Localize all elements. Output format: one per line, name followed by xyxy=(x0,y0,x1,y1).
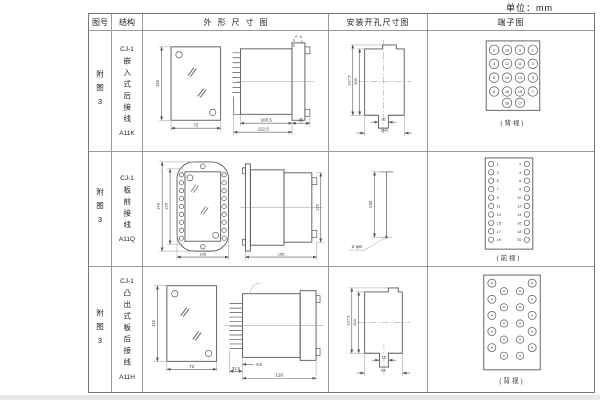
svg-text:3: 3 xyxy=(497,171,499,175)
fig-no-text: 附图3 xyxy=(95,309,106,351)
svg-text:14: 14 xyxy=(517,213,521,217)
structure-desc: 板前接线 xyxy=(123,186,131,232)
row3-fig-no: 附图3 xyxy=(89,267,112,392)
svg-text:1: 1 xyxy=(532,47,534,52)
type-code: A11K xyxy=(119,130,134,137)
terminal-number-marks xyxy=(491,282,533,356)
structure-desc: 嵌入式后接线 xyxy=(123,57,131,126)
svg-text:12: 12 xyxy=(517,205,521,209)
model-label: CJ-1 xyxy=(120,46,134,53)
header-fig-no: 图号 xyxy=(89,14,112,31)
dim-bottom-width: 64 xyxy=(381,368,386,373)
dim-total-length: 126 xyxy=(276,373,284,378)
seal-mark-icon xyxy=(181,308,189,317)
dim-pins-length: 31.5 xyxy=(232,366,241,371)
svg-text:12: 12 xyxy=(505,61,509,66)
dim-front-width: 72 xyxy=(189,364,194,369)
dim-hole-height-outer: 107.5 xyxy=(345,315,350,326)
dim-slot-width: 16 xyxy=(382,355,387,360)
svg-text:4: 4 xyxy=(493,61,496,66)
svg-text:6: 6 xyxy=(493,75,496,80)
svg-text:2: 2 xyxy=(493,47,495,52)
dim-side-length: 156 xyxy=(278,252,286,257)
svg-text:7: 7 xyxy=(532,89,534,94)
svg-text:5: 5 xyxy=(532,75,535,80)
svg-text:8: 8 xyxy=(519,188,521,192)
svg-text:16: 16 xyxy=(517,221,521,225)
seal-mark-icon xyxy=(201,207,208,215)
svg-text:20: 20 xyxy=(517,238,521,242)
screw-icon xyxy=(213,232,219,238)
dim-hole-height-inner: 104 xyxy=(352,318,357,326)
dim-front-width: 105 xyxy=(199,252,207,257)
terminal-pins-icon xyxy=(230,304,243,349)
fig-no-text: 附图3 xyxy=(95,70,106,112)
row1-structure: CJ-1 嵌入式后接线 A11K xyxy=(112,31,143,152)
row3-structure: CJ-1 凸出式板后接线 A11H xyxy=(112,267,143,392)
dim-front-width: 72 xyxy=(193,123,198,128)
row2-terminal-drawing: 135791113151719 2468101214161820 (前视) xyxy=(428,152,594,267)
model-label: CJ-1 xyxy=(120,175,134,182)
terminal-circles xyxy=(488,279,536,359)
svg-text:4: 4 xyxy=(519,171,521,175)
type-code: A11Q xyxy=(119,236,135,243)
header-outline: 外形尺寸图 xyxy=(143,14,329,31)
dim-gap: 9.5 xyxy=(256,362,262,367)
svg-text:2: 2 xyxy=(519,162,521,166)
svg-text:15: 15 xyxy=(497,221,501,225)
dim-front-height: 115 xyxy=(155,79,160,87)
view-caption: (背视) xyxy=(500,118,525,127)
row3-install-drawing: 107.5 104 16 64 xyxy=(329,267,428,392)
terminal-numbers-left: 135791113151719 xyxy=(497,162,501,242)
model-label: CJ-1 xyxy=(120,278,134,285)
front-terminal-circles xyxy=(179,173,226,241)
dimension-table: 图号 结构 外形尺寸图 安装开孔尺寸图 端子图 附图3 CJ-1 嵌入式后接线 … xyxy=(88,13,595,393)
svg-text:11: 11 xyxy=(497,205,501,209)
svg-text:17: 17 xyxy=(518,100,522,105)
outline-drawing-a11q: 149 125 105 156 115 xyxy=(143,152,328,266)
terminal-circles xyxy=(488,161,529,242)
screw-icon xyxy=(187,175,193,181)
svg-text:3: 3 xyxy=(532,61,535,66)
header-terminal: 端子图 xyxy=(428,14,594,31)
terminal-circles xyxy=(489,45,537,108)
dim-hole-height-outer: 107.5 xyxy=(346,75,351,86)
terminal-diagram-a11k: 21091 412113 614135 816157 1817 (背视) xyxy=(428,31,594,151)
svg-text:17: 17 xyxy=(497,230,501,234)
install-drawing-a11k: 107.5 105 16 (64) xyxy=(329,31,427,151)
svg-text:13: 13 xyxy=(518,75,523,80)
terminal-pins-icon xyxy=(233,53,241,93)
row1-terminal-drawing: 21091 412113 614135 816157 1817 (背视) xyxy=(428,31,594,152)
row2-fig-no: 附图3 xyxy=(89,152,112,267)
svg-text:5: 5 xyxy=(497,179,499,183)
dim-side-height: 115 xyxy=(314,204,319,211)
outline-drawing-a11k: 115 72 100.5 35 122.5 xyxy=(143,31,328,151)
scan-edge xyxy=(0,395,600,400)
row2-install-drawing: 133 2-φ6 xyxy=(329,152,428,267)
terminal-diagram-a11q: 135791113151719 2468101214161820 (前视) xyxy=(428,152,594,266)
header-install: 安装开孔尺寸图 xyxy=(329,14,428,31)
dim-front-height-inner: 125 xyxy=(164,202,169,210)
mount-hole-icon xyxy=(200,244,205,249)
svg-text:18: 18 xyxy=(505,100,510,105)
row2-structure: CJ-1 板前接线 A11Q xyxy=(112,152,143,267)
svg-text:8: 8 xyxy=(493,89,496,94)
svg-text:6: 6 xyxy=(519,179,521,183)
hanging-hook-icon xyxy=(294,36,302,47)
svg-text:13: 13 xyxy=(497,213,501,217)
svg-text:7: 7 xyxy=(497,188,499,192)
svg-text:16: 16 xyxy=(505,89,510,94)
svg-text:10: 10 xyxy=(505,47,510,52)
terminal-diagram-a11h: (背视) xyxy=(428,267,594,392)
row1-fig-no: 附图3 xyxy=(89,31,112,152)
view-caption: (前视) xyxy=(496,253,521,262)
view-caption: (背视) xyxy=(499,376,525,385)
svg-text:19: 19 xyxy=(497,238,501,242)
svg-text:10: 10 xyxy=(517,196,521,200)
dim-body-length: 100.5 xyxy=(261,118,273,123)
screw-icon xyxy=(172,291,178,297)
screw-icon xyxy=(176,52,182,58)
type-code: A11H xyxy=(119,374,135,381)
structure-desc: 凸出式板后接线 xyxy=(123,289,131,370)
hole-note: 2-φ6 xyxy=(352,244,363,250)
dim-total-length: 122.5 xyxy=(258,127,270,132)
row3-terminal-drawing: (背视) xyxy=(428,267,594,392)
screw-icon xyxy=(205,350,211,356)
mount-hole-icon xyxy=(200,164,205,169)
svg-text:1: 1 xyxy=(497,162,499,166)
seal-mark-icon xyxy=(191,185,198,193)
svg-text:15: 15 xyxy=(518,89,523,94)
terminal-numbers-right: 2468101214161820 xyxy=(517,162,521,242)
svg-text:18: 18 xyxy=(517,230,521,234)
header-structure: 结构 xyxy=(112,14,143,31)
seal-mark-icon xyxy=(193,331,201,340)
row2-outline-drawing: 149 125 105 156 115 xyxy=(143,152,329,267)
seal-mark-icon xyxy=(198,89,206,98)
dim-flange-width: 35 xyxy=(298,118,303,123)
svg-text:14: 14 xyxy=(505,75,510,80)
dim-front-height: 115 xyxy=(151,319,156,327)
install-drawing-a11q: 133 2-φ6 xyxy=(329,152,427,266)
screw-icon xyxy=(210,109,216,115)
outline-drawing-a11h: 115 72 9.5 31.5 126 xyxy=(143,267,328,392)
hanging-hook-icon xyxy=(250,284,260,293)
svg-text:9: 9 xyxy=(519,47,522,52)
svg-text:9: 9 xyxy=(497,196,499,200)
seal-mark-icon xyxy=(188,68,196,77)
fig-no-text: 附图3 xyxy=(95,188,106,230)
dim-bottom-width: (64) xyxy=(381,128,389,133)
dim-hole-height-inner: 105 xyxy=(353,77,358,85)
install-drawing-a11h: 107.5 104 16 64 xyxy=(329,267,427,392)
row1-install-drawing: 107.5 105 16 (64) xyxy=(329,31,428,152)
dim-hole-spacing: 133 xyxy=(368,200,373,208)
row1-outline-drawing: 115 72 100.5 35 122.5 xyxy=(143,31,329,152)
row3-outline-drawing: 115 72 9.5 31.5 126 xyxy=(143,267,329,392)
svg-text:11: 11 xyxy=(518,61,522,66)
dim-front-height-outer: 149 xyxy=(156,202,161,210)
dim-notch-width: 16 xyxy=(381,117,386,122)
